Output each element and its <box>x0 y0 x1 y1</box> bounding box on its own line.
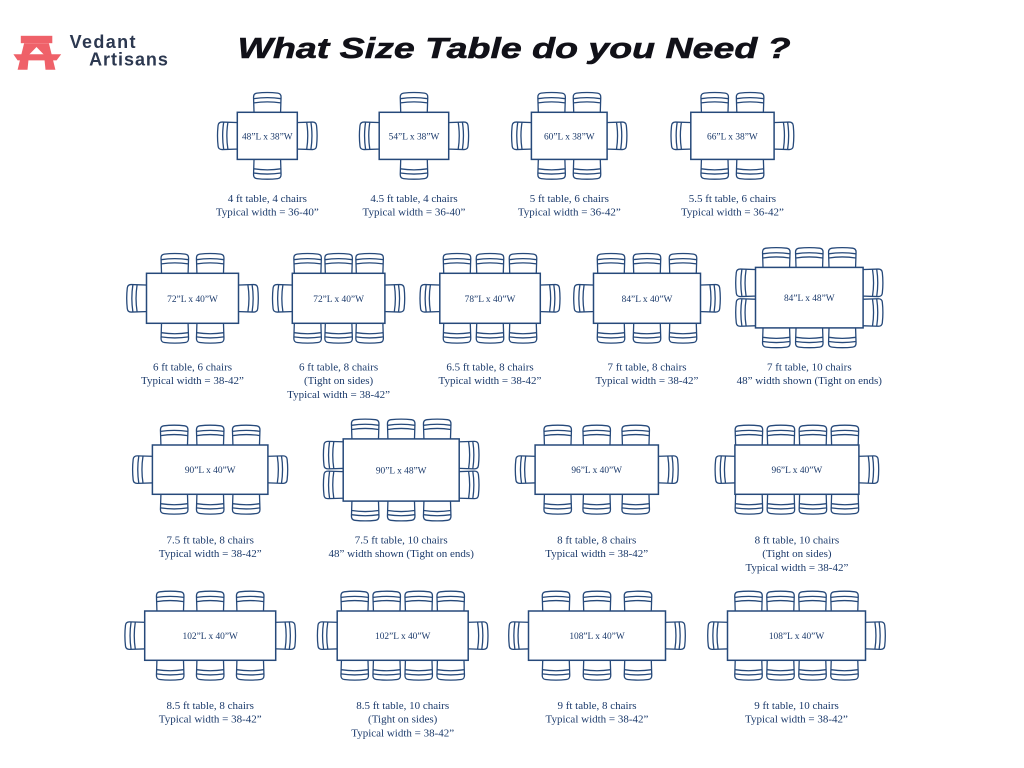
svg-text:7 ft table, 10 chairs: 7 ft table, 10 chairs <box>767 361 852 373</box>
svg-text:Typical width = 38-42”: Typical width = 38-42” <box>287 389 390 401</box>
svg-text:Typical width = 38-42”: Typical width = 38-42” <box>351 727 454 739</box>
svg-text:5 ft table, 6 chairs: 5 ft table, 6 chairs <box>530 193 609 205</box>
svg-text:102”L x 40”W: 102”L x 40”W <box>375 632 431 642</box>
svg-text:Typical width = 38-42”: Typical width = 38-42” <box>745 714 848 726</box>
svg-text:108”L x 40”W: 108”L x 40”W <box>569 632 625 642</box>
svg-text:6 ft table, 8 chairs: 6 ft table, 8 chairs <box>299 361 378 373</box>
svg-text:5.5 ft table, 6 chairs: 5.5 ft table, 6 chairs <box>689 193 776 205</box>
svg-text:Typical width = 36-40”: Typical width = 36-40” <box>363 207 466 219</box>
svg-text:108”L x 40”W: 108”L x 40”W <box>769 632 825 642</box>
svg-text:72”L x 40”W: 72”L x 40”W <box>313 295 364 305</box>
svg-text:Typical width = 36-40”: Typical width = 36-40” <box>216 207 319 219</box>
svg-text:6.5 ft table, 8 chairs: 6.5 ft table, 8 chairs <box>446 361 533 373</box>
svg-text:Typical width = 38-42”: Typical width = 38-42” <box>545 548 648 560</box>
svg-text:8 ft table, 10 chairs: 8 ft table, 10 chairs <box>755 534 840 546</box>
svg-text:Typical width = 38-42”: Typical width = 38-42” <box>439 375 542 387</box>
svg-text:9 ft table, 10 chairs: 9 ft table, 10 chairs <box>754 700 839 712</box>
svg-text:96”L x 40”W: 96”L x 40”W <box>772 466 823 476</box>
svg-text:(Tight on sides): (Tight on sides) <box>368 714 438 726</box>
svg-text:(Tight on sides): (Tight on sides) <box>762 548 832 560</box>
svg-text:84”L x 40”W: 84”L x 40”W <box>622 295 673 305</box>
svg-text:66”L x 38”W: 66”L x 38”W <box>707 132 758 142</box>
svg-text:60”L x 38”W: 60”L x 38”W <box>544 132 595 142</box>
svg-text:Typical width = 38-42”: Typical width = 38-42” <box>159 714 262 726</box>
svg-text:48”L x 38”W: 48”L x 38”W <box>242 132 293 142</box>
svg-text:78”L x 40”W: 78”L x 40”W <box>465 295 516 305</box>
svg-text:(Tight on sides): (Tight on sides) <box>304 375 374 387</box>
svg-text:Typical width = 36-42”: Typical width = 36-42” <box>518 207 621 219</box>
svg-text:84”L x 48”W: 84”L x 48”W <box>784 294 835 304</box>
svg-text:48” width shown (Tight on ends: 48” width shown (Tight on ends) <box>329 548 475 560</box>
svg-text:90”L x 48”W: 90”L x 48”W <box>376 467 427 477</box>
svg-text:54”L x 38”W: 54”L x 38”W <box>389 132 440 142</box>
svg-text:4.5 ft table, 4 chairs: 4.5 ft table, 4 chairs <box>370 193 457 205</box>
svg-text:8.5 ft table, 10 chairs: 8.5 ft table, 10 chairs <box>356 700 449 712</box>
svg-text:90”L x 40”W: 90”L x 40”W <box>185 466 236 476</box>
svg-text:Typical width = 38-42”: Typical width = 38-42” <box>745 562 848 574</box>
svg-text:7 ft table, 8 chairs: 7 ft table, 8 chairs <box>607 361 686 373</box>
svg-text:Typical width = 38-42”: Typical width = 38-42” <box>596 375 699 387</box>
svg-text:Typical width = 38-42”: Typical width = 38-42” <box>159 548 262 560</box>
svg-text:4 ft table, 4 chairs: 4 ft table, 4 chairs <box>228 193 307 205</box>
svg-text:7.5 ft table, 10 chairs: 7.5 ft table, 10 chairs <box>355 534 448 546</box>
svg-text:8 ft table, 8 chairs: 8 ft table, 8 chairs <box>557 534 636 546</box>
svg-text:96”L x 40”W: 96”L x 40”W <box>571 466 622 476</box>
svg-text:72”L x 40”W: 72”L x 40”W <box>167 295 218 305</box>
svg-text:102”L x 40”W: 102”L x 40”W <box>183 632 239 642</box>
svg-text:Typical width = 36-42”: Typical width = 36-42” <box>681 207 784 219</box>
svg-text:Typical width = 38-42”: Typical width = 38-42” <box>141 375 244 387</box>
svg-text:48” width shown (Tight on ends: 48” width shown (Tight on ends) <box>737 375 883 387</box>
svg-text:7.5 ft table, 8 chairs: 7.5 ft table, 8 chairs <box>167 534 254 546</box>
svg-text:Typical width = 38-42”: Typical width = 38-42” <box>546 714 649 726</box>
svg-text:8.5 ft table, 8 chairs: 8.5 ft table, 8 chairs <box>167 700 254 712</box>
svg-text:6 ft table, 6 chairs: 6 ft table, 6 chairs <box>153 361 232 373</box>
svg-text:9 ft table, 8 chairs: 9 ft table, 8 chairs <box>557 700 636 712</box>
